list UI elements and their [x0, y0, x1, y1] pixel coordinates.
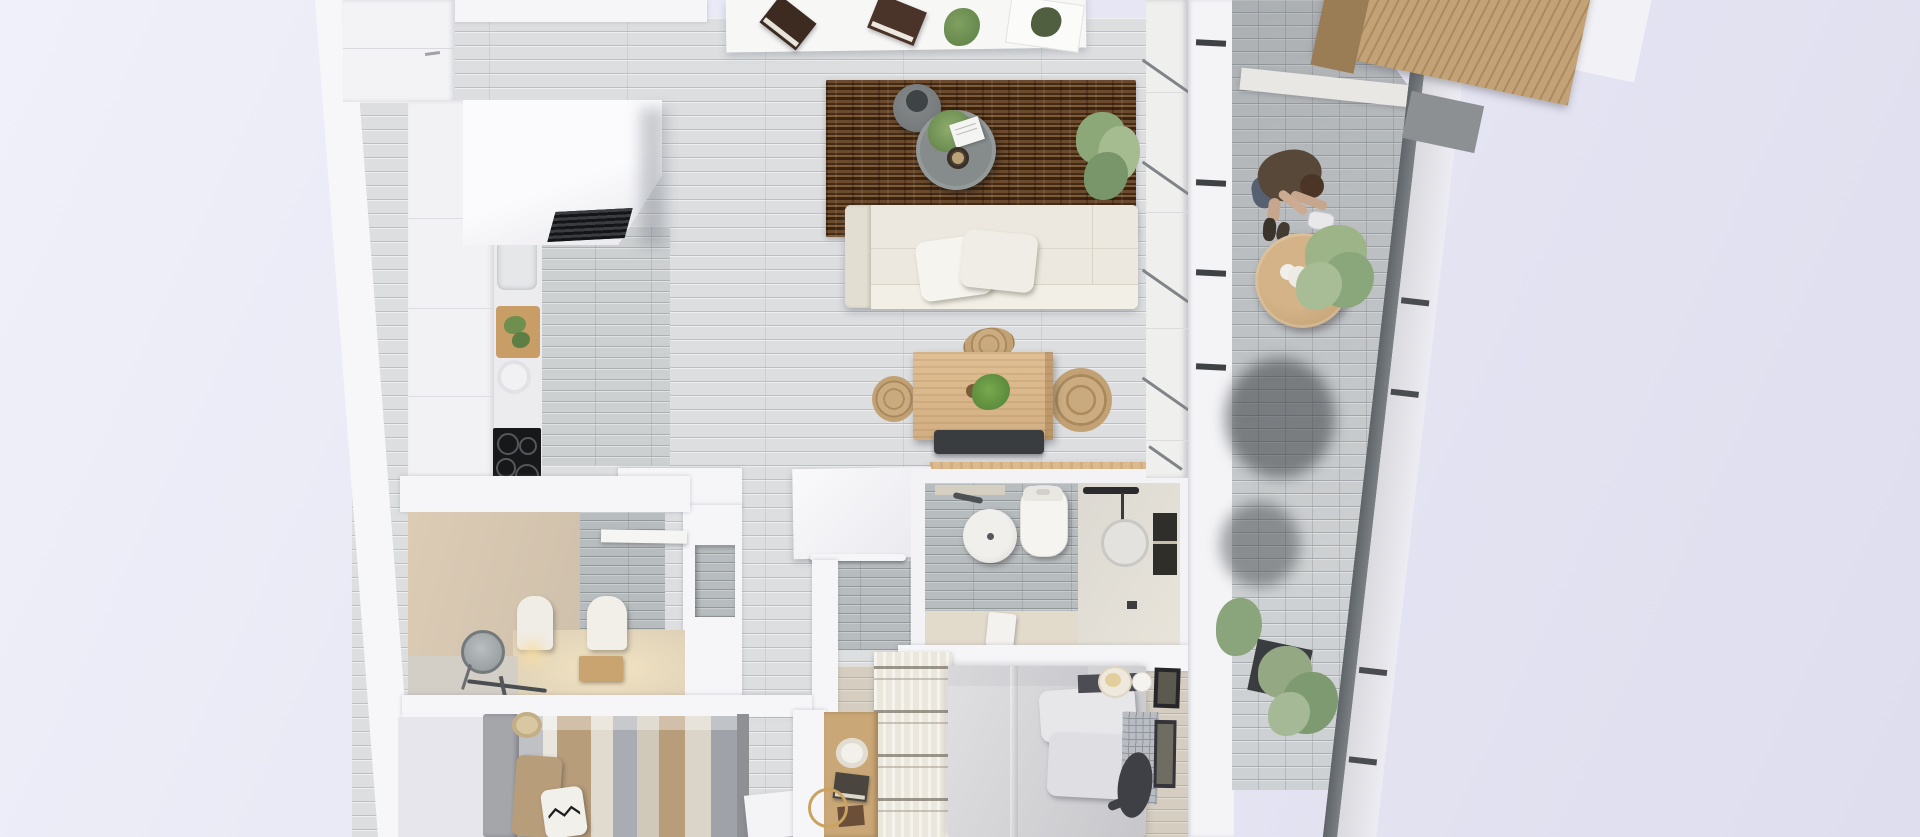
sofa-pillow	[959, 228, 1039, 293]
toilet	[1020, 485, 1068, 557]
bedroom2-floor	[398, 717, 486, 837]
wall-bedroom2-top	[402, 695, 812, 717]
wardrobe-handle-icon	[1148, 445, 1182, 470]
brass-ring-icon	[808, 788, 848, 828]
railing-bracket-icon	[1390, 389, 1418, 398]
window-frame-mark	[1196, 363, 1226, 371]
wardrobe-handle-icon	[1142, 377, 1190, 412]
candle-glow	[521, 642, 543, 664]
bathroom-second	[405, 512, 683, 700]
niche-unit-body	[683, 505, 742, 718]
plate	[497, 360, 531, 394]
bedroom-rug	[874, 652, 952, 837]
sofa-armrest	[845, 205, 871, 308]
kitchen-upper-cabinets	[343, 0, 455, 102]
island-vent-icon	[547, 208, 632, 242]
wall-shelf	[601, 529, 687, 543]
wicker-basket	[512, 712, 542, 738]
wall-frame	[1153, 668, 1180, 709]
wardrobe	[1146, 0, 1188, 478]
floor-plan-render	[0, 0, 1920, 837]
decor-bowl	[947, 147, 969, 169]
plant-shadow	[1220, 502, 1300, 587]
wooden-stool	[579, 656, 623, 681]
bed2-pillow-zigzag	[540, 785, 588, 837]
washbasin	[963, 509, 1017, 563]
bath-mat	[985, 612, 1016, 649]
shower-niche	[1153, 513, 1177, 575]
dining-chair	[1050, 368, 1112, 432]
breakfast-bowl	[1098, 666, 1132, 698]
railing-bracket-icon	[1359, 667, 1387, 676]
window-frame-mark	[1196, 269, 1226, 277]
dining-bench	[934, 430, 1044, 454]
kitchen-floor	[540, 226, 670, 466]
wall-bathroom2-top	[400, 476, 690, 512]
railing-bracket-icon	[1401, 297, 1429, 306]
wardrobe-handle-icon	[1142, 269, 1190, 304]
window-frame-mark	[1196, 39, 1226, 47]
island-shadow	[640, 108, 666, 246]
floor-drain-icon	[1127, 601, 1137, 609]
shower-bar-icon	[1083, 487, 1139, 494]
bidet	[587, 596, 627, 650]
wall-frame	[1153, 720, 1176, 788]
railing-bracket-icon	[1349, 756, 1377, 765]
cutting-board	[496, 306, 540, 358]
vanity-shelf	[935, 485, 1005, 495]
wardrobe-handle-icon	[1142, 161, 1190, 196]
bathroom-main	[925, 483, 1180, 648]
sun-hat	[836, 738, 868, 768]
zigzag-pattern-icon	[547, 802, 581, 824]
cup	[1132, 672, 1152, 692]
wardrobe-handle-icon	[1142, 59, 1190, 94]
wall-niche	[695, 545, 735, 617]
sofa	[845, 205, 1138, 308]
dining-chair	[872, 376, 916, 422]
window-frame-mark	[1196, 179, 1226, 187]
person-shadow	[1225, 358, 1335, 478]
closet-top	[792, 467, 933, 559]
side-table-vase-icon	[906, 90, 928, 112]
shower-drain-circle	[1101, 519, 1149, 567]
closet-side-wall	[812, 560, 838, 712]
